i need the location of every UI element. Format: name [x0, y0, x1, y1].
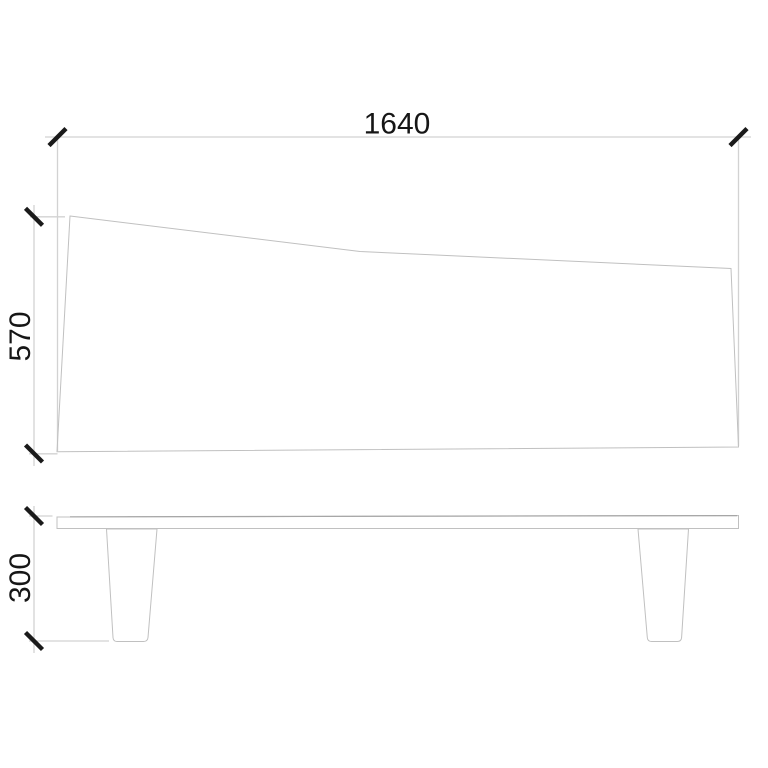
- svg-text:1640: 1640: [364, 107, 431, 140]
- svg-text:300: 300: [4, 553, 37, 603]
- svg-text:570: 570: [4, 311, 37, 361]
